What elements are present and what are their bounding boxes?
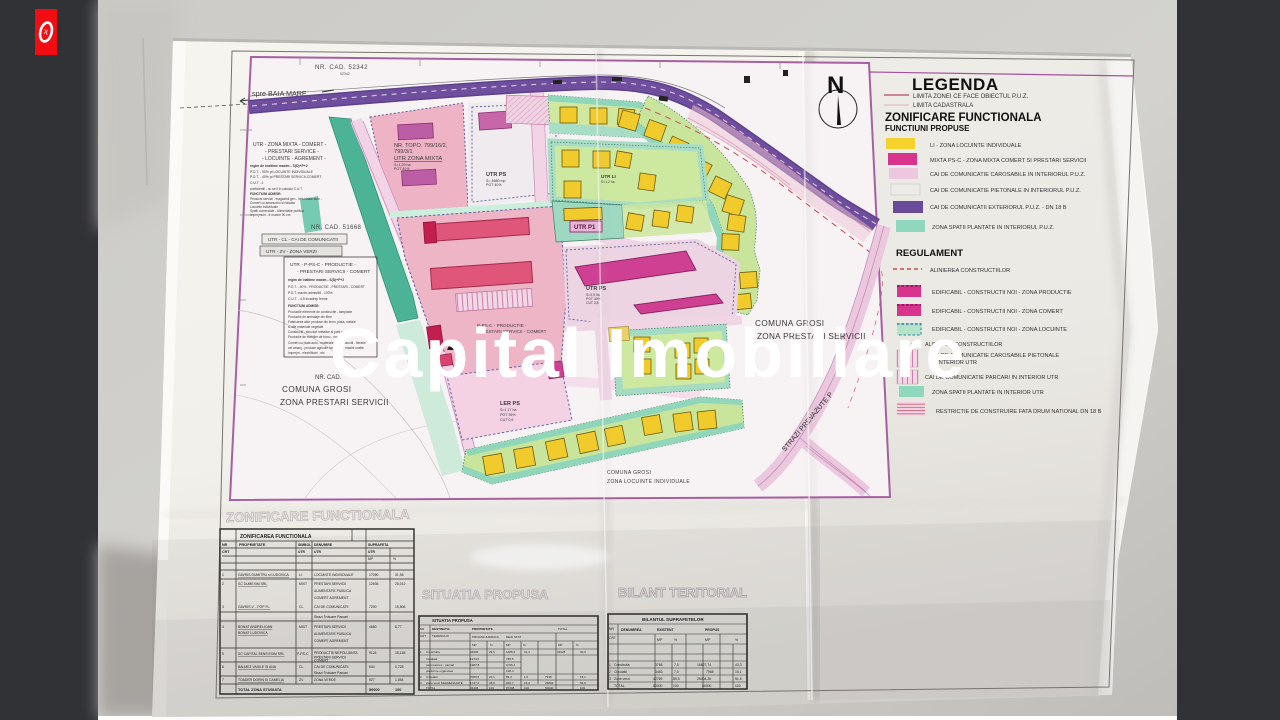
svg-text:SIMBOL: SIMBOL: [298, 543, 311, 547]
svg-text:PROPRIETATE: PROPRIETATE: [239, 543, 266, 547]
svg-text:RESTRICTIE DE CONSTRUIRE FATA: RESTRICTIE DE CONSTRUIRE FATA DRUM NATIO…: [936, 409, 1102, 415]
svg-text:FUNCTIUNI ADMISE:: FUNCTIUNI ADMISE:: [288, 304, 319, 308]
svg-text:ZONA SPATII PLANTATE IN INTE: ZONA SPATII PLANTATE IN INTERIORUL P.U.Z…: [932, 225, 1055, 231]
svg-text:Construita: Construita: [614, 663, 630, 667]
svg-text:1,854: 1,854: [395, 678, 404, 682]
svg-text:COMERT AGREMENT: COMERT AGREMENT: [314, 596, 349, 600]
svg-text:GAVRIS V. - POP FL.: GAVRIS V. - POP FL.: [238, 605, 270, 609]
svg-text:20,1: 20,1: [489, 675, 495, 679]
svg-text:ZONA VERDE: ZONA VERDE: [314, 678, 337, 682]
svg-text:MP: MP: [368, 557, 374, 561]
svg-text:89,4: 89,4: [506, 675, 512, 679]
svg-text:LEGENDA: LEGENDA: [912, 75, 999, 94]
svg-text:SITUATIA PROPUSA: SITUATIA PROPUSA: [432, 618, 473, 623]
svg-text:7948: 7948: [545, 675, 552, 679]
svg-text:- PRESTARI SERVICII - COMERT: - PRESTARI SERVICII - COMERT: [297, 269, 370, 275]
svg-text:UTR: UTR: [368, 550, 376, 554]
svg-text:5: 5: [222, 652, 224, 656]
svg-text:%: %: [576, 643, 579, 647]
svg-text:12936: 12936: [369, 582, 379, 586]
svg-text:si alte materiale vegetale: si alte materiale vegetale: [288, 325, 323, 329]
svg-text:CL: CL: [299, 605, 303, 609]
svg-text:Strazi Trotuare Parcari: Strazi Trotuare Parcari: [314, 671, 348, 675]
svg-text:EXISTENT: EXISTENT: [657, 628, 675, 632]
svg-text:UTR - ZV - ZONA VERZI: UTR - ZV - ZONA VERZI: [266, 249, 317, 254]
svg-text:1: 1: [222, 573, 224, 577]
svg-text:31,4: 31,4: [524, 650, 530, 654]
svg-text:51,6: 51,6: [735, 677, 742, 681]
svg-text:16627,74: 16627,74: [697, 663, 711, 667]
svg-text:29,6: 29,6: [489, 650, 495, 654]
svg-text:S=1,17 ha: S=1,17 ha: [500, 408, 517, 412]
svg-text:CUT 0,9: CUT 0,9: [500, 418, 513, 422]
svg-text:4: 4: [222, 625, 224, 629]
svg-text:Construita: Construita: [426, 650, 440, 654]
svg-text:PRESTARI SERVICII: PRESTARI SERVICII: [314, 582, 346, 586]
svg-text:UTR - CL - CAI DE COMUNICATII: UTR - CL - CAI DE COMUNICATII: [268, 237, 338, 242]
svg-text:EDIFICABIL - CONSTRUCTII NOI: EDIFICABIL - CONSTRUCTII NOI - ZONA PROD…: [932, 290, 1072, 296]
svg-text:2: 2: [609, 670, 611, 674]
svg-text:UTR P1: UTR P1: [574, 225, 596, 231]
svg-text:844: 844: [369, 665, 375, 669]
svg-text:87298: 87298: [506, 686, 515, 690]
svg-text:LIMITA ZONEI CE FACE OBIECTUL: LIMITA ZONEI CE FACE OBIECTUL P.U.Z.: [913, 94, 1029, 100]
svg-text:ZONIFICAREA FUNCTIONALA: ZONIFICAREA FUNCTIONALA: [240, 534, 312, 540]
svg-text:CRT: CRT: [609, 636, 616, 640]
svg-text:1987,8: 1987,8: [470, 663, 480, 667]
svg-text:85,5: 85,5: [673, 677, 680, 681]
svg-text:25,012: 25,012: [395, 582, 405, 586]
svg-text:MIXTA PS-C - ZONA MIXTA COM: MIXTA PS-C - ZONA MIXTA COMERT SI PRESTA…: [930, 158, 1087, 164]
svg-text:9124: 9124: [369, 651, 377, 655]
svg-text:BONAT ANDREI-IOAN: BONAT ANDREI-IOAN: [238, 625, 273, 629]
svg-text:P.O.T. - 50% - PRODUCTI: P.O.T. - 50% - PRODUCTIE - PRESTARI - CO…: [288, 285, 365, 289]
svg-text:FUNCTIUNI PROPUSE: FUNCTIUNI PROPUSE: [885, 124, 970, 133]
svg-text:regim de inaltime maxim - S(D): regim de inaltime maxim - S(D)+P+2: [250, 164, 308, 168]
svg-text:TERENULUI: TERENULUI: [432, 634, 449, 638]
svg-text:7200: 7200: [369, 605, 377, 609]
svg-text:LI - ZONA LOCUINTE INDIVIDUA: LI - ZONA LOCUINTE INDIVIDUALE: [930, 143, 1022, 149]
svg-text:CUT 0,8: CUT 0,8: [586, 301, 599, 305]
svg-text:31,98: 31,98: [395, 573, 404, 577]
svg-text:BONAT LUDOVICA: BONAT LUDOVICA: [238, 631, 268, 635]
svg-text:SITUATIA PROPUSA: SITUATIA PROPUSA: [422, 587, 549, 602]
svg-text:830,7: 830,7: [506, 681, 514, 685]
svg-text:- LOCUINTE - AGREMENT -: - LOCUINTE - AGREMENT -: [262, 156, 326, 162]
svg-text:TOTAL: TOTAL: [558, 627, 568, 631]
svg-text:LER PS: LER PS: [500, 401, 520, 407]
svg-text:MP: MP: [558, 643, 563, 647]
svg-text:52342: 52342: [340, 72, 350, 76]
svg-text:MP: MP: [506, 643, 511, 647]
svg-text:LIMITA CADASTRALA: LIMITA CADASTRALA: [913, 103, 973, 109]
svg-text:50000: 50000: [653, 684, 663, 688]
svg-text:spre BAIA MARE: spre BAIA MARE: [252, 89, 307, 98]
svg-text:100: 100: [735, 684, 741, 688]
svg-text:BILANT TERITORIAL: BILANT TERITORIAL: [618, 585, 747, 600]
svg-text:P.O.T. maxim admisibil - 100%: P.O.T. maxim admisibil - 100%: [288, 291, 333, 295]
svg-text:785,5: 785,5: [506, 657, 514, 661]
svg-text:50040: 50040: [545, 686, 554, 690]
svg-text:15,4: 15,4: [524, 681, 530, 685]
svg-text:7968: 7968: [706, 670, 714, 674]
svg-text:PRESTARI SERVICII: PRESTARI SERVICII: [314, 625, 346, 629]
svg-text:UTR LI: UTR LI: [601, 174, 616, 179]
svg-text:17090: 17090: [369, 573, 379, 577]
svg-text:ZONIFICARE FUNCTIONALA: ZONIFICARE FUNCTIONALA: [226, 507, 410, 525]
svg-text:1,5: 1,5: [524, 675, 529, 679]
svg-text:CAI DE COMUNICATII EXTERIORUL: CAI DE COMUNICATII EXTERIORUL P.U.Z. - D…: [930, 205, 1067, 211]
svg-text:ZONA PRESTARI SERVICII: ZONA PRESTARI SERVICII: [280, 398, 389, 407]
svg-text:15,1: 15,1: [735, 670, 742, 674]
svg-text:LOCUINTE INDIVIDUALE: LOCUINTE INDIVIDUALE: [314, 573, 354, 577]
svg-text:FUNCTIUNI ADMISE:: FUNCTIUNI ADMISE:: [250, 192, 281, 196]
svg-text:25804: 25804: [545, 681, 554, 685]
svg-text:UTR: UTR: [314, 550, 322, 554]
svg-text:POT 40%: POT 40%: [394, 167, 410, 171]
svg-text:Zone verzi: Zone verzi: [614, 677, 630, 681]
svg-text:PROPRIETATE: PROPRIETATE: [472, 627, 493, 631]
svg-text:regim de inaltime maxim - S(D): regim de inaltime maxim - S(D)+P+2: [288, 278, 344, 282]
svg-text:petrol-acces - parcari: petrol-acces - parcari: [426, 663, 455, 667]
svg-text:8,77: 8,77: [395, 625, 402, 629]
svg-text:%: %: [393, 557, 396, 561]
svg-text:MIXT: MIXT: [299, 625, 307, 629]
svg-text:MP: MP: [472, 643, 477, 647]
svg-text:1970,5: 1970,5: [470, 657, 480, 661]
svg-text:%: %: [735, 638, 738, 642]
svg-text:COMUNA GROSI: COMUNA GROSI: [607, 470, 651, 476]
svg-text:1686,5: 1686,5: [506, 650, 516, 654]
svg-text:ZONA LOCUINTE INDIVIDUALE: ZONA LOCUINTE INDIVIDUALE: [607, 479, 690, 485]
svg-text:3768: 3768: [655, 663, 663, 667]
svg-text:53,6: 53,6: [580, 681, 586, 685]
svg-text:0,728: 0,728: [395, 665, 404, 669]
svg-text:P.O.T. - 40% pt PRESTA: P.O.T. - 40% pt PRESTARI SERVICII-COMERT: [250, 175, 321, 179]
svg-text:NR: NR: [609, 627, 614, 631]
svg-text:15,806: 15,806: [395, 605, 405, 609]
svg-text:25404,26: 25404,26: [697, 677, 711, 681]
svg-text:42769: 42769: [653, 677, 663, 681]
svg-text:LI: LI: [299, 573, 302, 577]
svg-text:Strazi Trotuare Parcari: Strazi Trotuare Parcari: [314, 615, 348, 619]
svg-text:Circulatii: Circulatii: [426, 675, 438, 679]
svg-text:PROPUS: PROPUS: [705, 628, 720, 632]
svg-text:GAVRIS DUMITRU si LUDOVICA: GAVRIS DUMITRU si LUDOVICA: [238, 573, 290, 577]
svg-text:CRT: CRT: [222, 550, 230, 554]
svg-text:7,5: 7,5: [674, 663, 679, 667]
svg-text:Zone verzi NEAMENAJATE: Zone verzi NEAMENAJATE: [426, 681, 463, 685]
svg-text:C.U.T. -1: C.U.T. -1: [250, 181, 263, 185]
svg-text:COMERT: COMERT: [314, 659, 329, 663]
svg-text:100: 100: [673, 684, 679, 688]
svg-text:38,6: 38,6: [489, 681, 495, 685]
svg-text:1: 1: [609, 663, 611, 667]
svg-text:NR. CAD. 52342: NR. CAD. 52342: [315, 64, 368, 71]
svg-text:DENUMIREA: DENUMIREA: [621, 628, 642, 632]
svg-text:50000: 50000: [369, 688, 380, 692]
svg-text:18,148: 18,148: [395, 651, 405, 655]
svg-text:1747,2: 1747,2: [470, 681, 480, 685]
svg-text:%: %: [523, 643, 526, 647]
svg-text:UTR - P-PS-C - PRODUCTIE -: UTR - P-PS-C - PRODUCTIE -: [290, 262, 356, 268]
svg-text:DE/D STAT: DE/D STAT: [506, 635, 521, 639]
svg-text:BILANTUL SUPRAFETELOR: BILANTUL SUPRAFETELOR: [642, 617, 704, 622]
svg-text:REGULAMENT: REGULAMENT: [896, 248, 963, 259]
svg-text:CRT: CRT: [420, 634, 426, 638]
svg-text:50000: 50000: [702, 684, 712, 688]
svg-text:COMERT AGREMENT: COMERT AGREMENT: [314, 639, 349, 643]
svg-text:TOTAL: TOTAL: [614, 684, 625, 688]
svg-text:MIXT: MIXT: [299, 582, 307, 586]
svg-text:DENUMIRE: DENUMIRE: [314, 543, 333, 547]
svg-text:CAI DE COMUNICATIE PIETONALE: CAI DE COMUNICATIE PIETONALE IN INTERIOR…: [930, 188, 1081, 194]
svg-text:34628: 34628: [557, 650, 566, 654]
svg-text:TOTAL ZONA STUDIATA: TOTAL ZONA STUDIATA: [238, 688, 282, 692]
svg-text:CL: CL: [299, 665, 303, 669]
svg-text:Circulatii: Circulatii: [614, 670, 627, 674]
svg-text:MP: MP: [705, 638, 711, 642]
svg-text:30,0: 30,0: [580, 650, 586, 654]
svg-text:41406: 41406: [470, 686, 479, 690]
svg-text:43,3: 43,3: [735, 663, 742, 667]
svg-text:%: %: [674, 638, 677, 642]
svg-text:SC DUMEXIM SRL: SC DUMEXIM SRL: [238, 582, 267, 586]
svg-text:ALIMENTATIE PUBLICA: ALIMENTATIE PUBLICA: [314, 632, 352, 636]
svg-text:CAI DE COMUNICATII: CAI DE COMUNICATII: [314, 665, 348, 669]
svg-text:UTR ZONA MIXTA: UTR ZONA MIXTA: [394, 156, 442, 162]
svg-text:PRODUCTIE NEPOLUANTA: PRODUCTIE NEPOLUANTA: [314, 651, 358, 655]
svg-text:POT 35%: POT 35%: [500, 413, 516, 417]
svg-text:S=1,2 ha: S=1,2 ha: [601, 180, 615, 184]
svg-text:%: %: [490, 643, 493, 647]
svg-text:1036,4: 1036,4: [506, 663, 516, 667]
svg-text:100: 100: [580, 686, 585, 690]
svg-text:3: 3: [222, 605, 224, 609]
svg-text:Imprejmuiri - fr maxim 90 cm: Imprejmuiri - fr maxim 90 cm: [250, 213, 291, 217]
svg-text:Capital Imobiliare: Capital Imobiliare: [330, 314, 967, 392]
svg-text:NR. CAD. 51668: NR. CAD. 51668: [311, 225, 362, 231]
svg-text:100: 100: [395, 688, 401, 692]
svg-text:CAI DE COMUNICATIE CAROSABIL: CAI DE COMUNICATIE CAROSABILE IN INTERIO…: [930, 172, 1086, 178]
svg-text:6: 6: [222, 665, 224, 669]
svg-text:MP: MP: [657, 638, 663, 642]
svg-text:coeficientii - nu se fi in cal: coeficientii - nu se fi in calculul C.U.…: [250, 187, 303, 191]
svg-text:ALIMENTATIE PUBLICA: ALIMENTATIE PUBLICA: [314, 589, 352, 593]
svg-text:100: 100: [489, 686, 494, 690]
svg-text:ZONIFICARE FUNCTIONALA: ZONIFICARE FUNCTIONALA: [885, 112, 1042, 124]
svg-text:UTR - ZONA MIXTA - COMERT -: UTR - ZONA MIXTA - COMERT -: [253, 142, 327, 148]
svg-text:100: 100: [524, 686, 529, 690]
svg-text:138,4: 138,4: [506, 669, 514, 673]
svg-text:BALMEZ VASILE SI ANA: BALMEZ VASILE SI ANA: [238, 665, 277, 669]
svg-text:799/3/1: 799/3/1: [394, 149, 413, 155]
svg-text:ALINIEREA CONSTRUCTIILOR: ALINIEREA CONSTRUCTIILOR: [930, 268, 1010, 274]
svg-text:7: 7: [222, 678, 224, 682]
svg-text:Instalata: Instalata: [426, 657, 438, 661]
svg-text:UTR PS: UTR PS: [486, 172, 507, 178]
svg-text:UTR: UTR: [298, 550, 306, 554]
svg-text:927: 927: [369, 678, 375, 682]
svg-text:Productie de ambalaje din fibr: Productie de ambalaje din fibre: [288, 315, 332, 319]
svg-text:NR: NR: [222, 543, 228, 547]
svg-text:platforme organizate: platforme organizate: [426, 669, 454, 673]
svg-text:P-PS-C: P-PS-C: [297, 652, 309, 656]
svg-text:P.O.T. - 50% pt LOCUIN: P.O.T. - 50% pt LOCUINTE INDIVIDUALE: [250, 170, 314, 174]
svg-text:2: 2: [222, 582, 224, 586]
svg-text:PRIVATA/JURIDICA: PRIVATA/JURIDICA: [472, 635, 499, 639]
svg-text:Imprejm - electrificari - etc: Imprejm - electrificari - etc: [288, 351, 325, 355]
svg-text:7,0: 7,0: [674, 670, 679, 674]
svg-text:TOADER DORIN SI CAMELIA: TOADER DORIN SI CAMELIA: [238, 678, 285, 682]
svg-text:4680: 4680: [369, 625, 377, 629]
svg-text:POT 40%: POT 40%: [486, 183, 502, 187]
svg-text:3483: 3483: [655, 670, 663, 674]
svg-text:- PRESTARI SERVICE -: - PRESTARI SERVICE -: [265, 149, 319, 155]
svg-text:3: 3: [609, 677, 611, 681]
svg-text:7080,5: 7080,5: [470, 675, 480, 679]
svg-text:DESTINATIA: DESTINATIA: [432, 627, 451, 631]
svg-text:SC CAPITAL SENS EXIM SRL: SC CAPITAL SENS EXIM SRL: [238, 652, 284, 656]
svg-text:SUPRAFETA: SUPRAFETA: [368, 543, 389, 547]
svg-text:N: N: [827, 72, 844, 99]
svg-text:C.U.T. - 4,5 incadrep ferme: C.U.T. - 4,5 incadrep ferme: [288, 297, 328, 301]
svg-text:CAI DE COMUNICATII: CAI DE COMUNICATII: [314, 605, 348, 609]
svg-text:TOTAL: TOTAL: [426, 686, 436, 690]
svg-text:15,1: 15,1: [580, 675, 586, 679]
svg-text:34906: 34906: [470, 650, 479, 654]
svg-text:ZV: ZV: [299, 678, 304, 682]
